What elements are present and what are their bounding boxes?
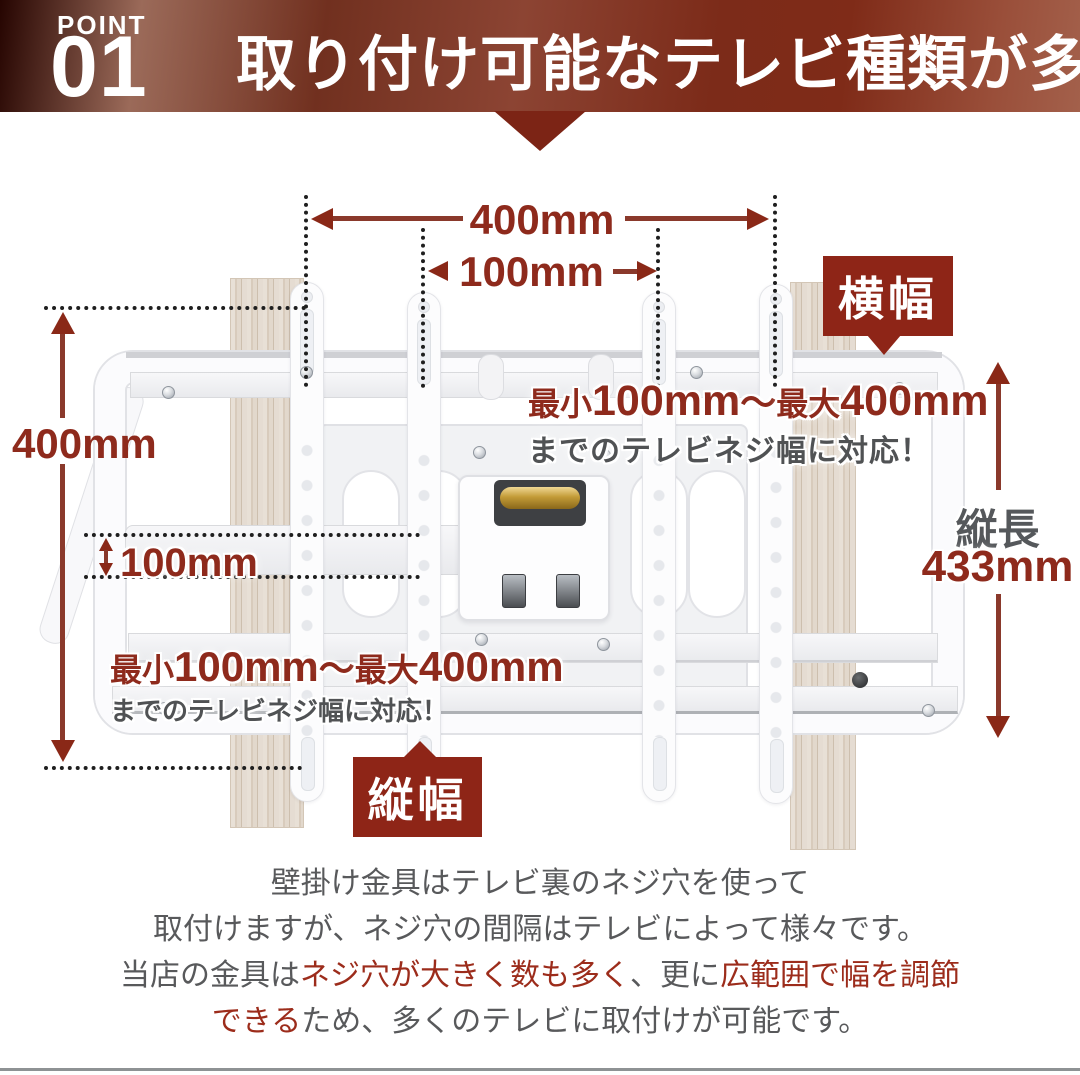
measure-line bbox=[996, 594, 1001, 718]
dotted-guide-vertical bbox=[656, 228, 660, 388]
range-max-value: 400mm bbox=[419, 643, 564, 690]
description-line: 当店の金具はネジ穴が大きく数も多く、更に広範囲で幅を調節 bbox=[0, 953, 1080, 999]
range-separator: ～ bbox=[319, 648, 355, 689]
description-emphasis: できる bbox=[212, 1005, 301, 1038]
screw bbox=[473, 446, 486, 459]
hinge-pin bbox=[478, 354, 504, 400]
description-line: 壁掛け金具はテレビ裏のネジ穴を使って bbox=[0, 861, 1080, 907]
description-text: 当店の金具は bbox=[120, 959, 300, 992]
dotted-guide-horizontal bbox=[44, 766, 302, 770]
screw-width-callout-top: 最小100mm～最大400mm までのテレビネジ幅に対応！ bbox=[528, 380, 988, 470]
range-max-label: 最大 bbox=[776, 386, 840, 422]
measure-left-outer-label: 400mm bbox=[12, 420, 162, 468]
measure-line bbox=[996, 384, 1001, 490]
strip-slot bbox=[301, 737, 315, 791]
height-badge-label: 縦幅 bbox=[368, 764, 468, 830]
measure-top-outer-label: 400mm bbox=[452, 196, 632, 244]
point-number: 01 bbox=[50, 24, 148, 110]
description-paragraph: 壁掛け金具はテレビ裏のネジ穴を使って 取付けますが、ネジ穴の間隔はテレビによって… bbox=[0, 861, 1080, 1045]
screw-width-range: 最小100mm～最大400mm bbox=[110, 646, 564, 688]
strip-hole-column bbox=[643, 443, 675, 737]
screw bbox=[922, 704, 935, 717]
width-badge-tail-icon bbox=[867, 335, 901, 355]
page-title: 取り付け可能なテレビ種類が多い bbox=[236, 16, 1080, 103]
description-text: 取付けますが、ネジ穴の間隔はテレビによって様々です。 bbox=[153, 913, 927, 946]
range-min-value: 100mm bbox=[592, 377, 740, 425]
range-min-value: 100mm bbox=[174, 643, 319, 690]
description-line: できるため、多くのテレビに取付けが可能です。 bbox=[0, 999, 1080, 1045]
description-emphasis: ネジ穴が大きく数も多く bbox=[300, 959, 630, 992]
arrowhead-left-icon bbox=[311, 208, 333, 230]
height-badge-tail-icon bbox=[403, 741, 437, 758]
range-min-label: 最小 bbox=[528, 386, 592, 422]
arrowhead-right-icon bbox=[637, 261, 657, 281]
width-badge-label: 横幅 bbox=[838, 263, 938, 329]
measure-left-inner-label: 100mm bbox=[120, 541, 280, 586]
range-min-label: 最小 bbox=[110, 652, 174, 688]
dotted-guide-vertical bbox=[304, 195, 308, 387]
dotted-guide-horizontal bbox=[84, 533, 420, 537]
screw-width-range: 最小100mm～最大400mm bbox=[528, 380, 988, 423]
range-max-value: 400mm bbox=[840, 377, 988, 425]
dotted-guide-vertical bbox=[773, 195, 777, 387]
screw-width-caption: までのテレビネジ幅に対応！ bbox=[110, 691, 564, 728]
screw bbox=[597, 638, 610, 651]
arrowhead-down-icon bbox=[51, 740, 75, 762]
measure-line bbox=[625, 216, 747, 221]
arrowhead-right-icon bbox=[747, 208, 769, 230]
description-line: 取付けますが、ネジ穴の間隔はテレビによって様々です。 bbox=[0, 907, 1080, 953]
measure-line bbox=[104, 550, 108, 564]
strip-hole-column bbox=[760, 435, 792, 739]
bottom-divider bbox=[0, 1068, 1080, 1071]
dotted-guide-horizontal bbox=[44, 306, 306, 310]
mount-top-rail bbox=[126, 352, 942, 358]
bolt bbox=[852, 672, 868, 688]
range-max-label: 最大 bbox=[355, 652, 419, 688]
description-text: ため、多くのテレビに取付けが可能です。 bbox=[301, 1005, 868, 1038]
strip-slot bbox=[770, 739, 784, 793]
arrowhead-down-icon bbox=[99, 563, 113, 576]
screw-width-callout-bottom: 最小100mm～最大400mm までのテレビネジ幅に対応！ bbox=[110, 646, 564, 728]
description-text: 、更に bbox=[630, 959, 720, 992]
dotted-guide-vertical bbox=[421, 228, 425, 388]
vesa-clip bbox=[502, 574, 526, 608]
description-emphasis: 広範囲で幅を調節 bbox=[720, 959, 960, 992]
screw-width-caption: までのテレビネジ幅に対応！ bbox=[528, 426, 988, 470]
arrowhead-up-icon bbox=[986, 362, 1010, 384]
strip-slot bbox=[653, 737, 667, 791]
panel-cutout bbox=[688, 470, 746, 618]
header-band: POINT 01 取り付け可能なテレビ種類が多い bbox=[0, 0, 1080, 112]
range-separator: ～ bbox=[740, 382, 776, 423]
measure-line bbox=[333, 216, 463, 221]
arrowhead-down-icon bbox=[986, 716, 1010, 738]
measure-line bbox=[60, 334, 65, 418]
infographic-page: POINT 01 取り付け可能なテレビ種類が多い bbox=[0, 0, 1080, 1075]
header-pointer-triangle-icon bbox=[494, 111, 586, 151]
arrowhead-up-icon bbox=[51, 312, 75, 334]
description-text: 壁掛け金具はテレビ裏のネジ穴を使って bbox=[271, 867, 810, 900]
height-badge: 縦幅 bbox=[353, 757, 482, 837]
vesa-roller-bar bbox=[500, 487, 580, 509]
measure-line bbox=[60, 464, 65, 740]
measure-line bbox=[613, 269, 639, 274]
width-badge: 横幅 bbox=[823, 256, 953, 336]
screw bbox=[162, 386, 175, 399]
side-measure-value: 433mm bbox=[920, 542, 1075, 592]
measure-top-inner-label: 100mm bbox=[450, 248, 613, 296]
arrowhead-left-icon bbox=[428, 261, 448, 281]
vesa-clip bbox=[556, 574, 580, 608]
